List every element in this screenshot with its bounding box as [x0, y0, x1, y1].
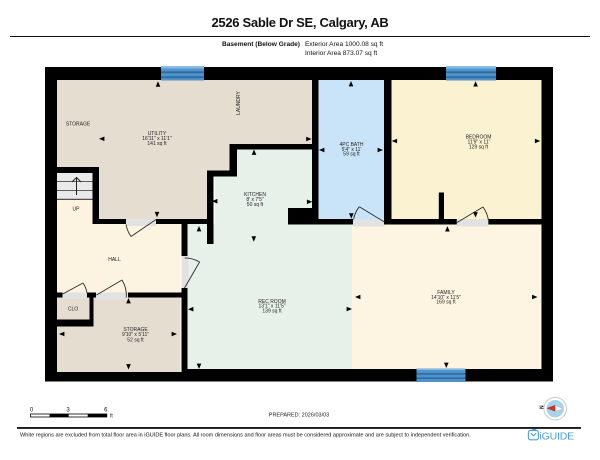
svg-text:52 sq ft: 52 sq ft [127, 337, 144, 343]
svg-text:ft: ft [110, 414, 113, 420]
svg-text:HALL: HALL [108, 257, 121, 263]
svg-text:0: 0 [30, 408, 34, 414]
svg-text:iGUIDE: iGUIDE [540, 431, 575, 443]
svg-text:129 sq ft: 129 sq ft [469, 144, 489, 150]
svg-text:169 sq ft: 169 sq ft [436, 300, 456, 306]
svg-text:PREPARED: 2026/03/03: PREPARED: 2026/03/03 [269, 412, 329, 418]
svg-text:UP: UP [73, 207, 81, 213]
svg-text:59 sq ft: 59 sq ft [343, 152, 360, 158]
svg-text:STORAGE: STORAGE [66, 122, 91, 128]
svg-text:N: N [540, 405, 546, 409]
svg-text:6: 6 [104, 408, 108, 414]
svg-text:50 sq ft: 50 sq ft [247, 202, 264, 208]
svg-text:3: 3 [66, 408, 70, 414]
svg-text:LAUNDRY: LAUNDRY [236, 90, 242, 114]
svg-text:White regions are excluded fro: White regions are excluded from total fl… [20, 433, 471, 439]
svg-text:141 sq ft: 141 sq ft [147, 141, 167, 147]
svg-text:CLO: CLO [68, 307, 78, 313]
svg-text:139 sq ft: 139 sq ft [262, 309, 282, 315]
